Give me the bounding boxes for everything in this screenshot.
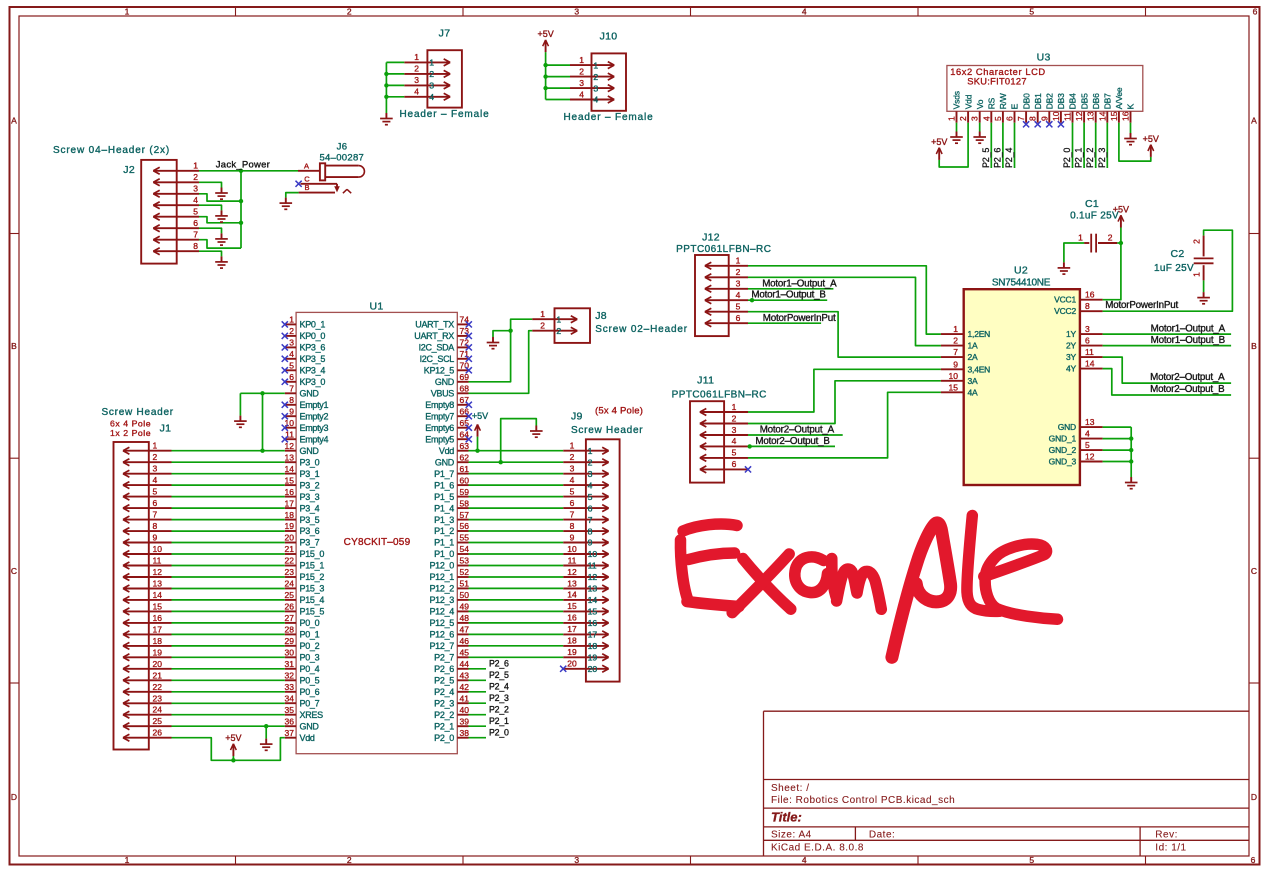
svg-text:C1: C1 xyxy=(1085,198,1099,210)
svg-text:P2_4: P2_4 xyxy=(434,687,454,697)
svg-text:PPTC061LFBN–RC: PPTC061LFBN–RC xyxy=(672,389,767,400)
svg-text:B: B xyxy=(304,183,309,192)
svg-text:SKU:FIT0127: SKU:FIT0127 xyxy=(967,76,1027,86)
svg-text:Title:: Title: xyxy=(771,810,802,825)
svg-text:49: 49 xyxy=(460,602,470,612)
svg-text:Motor2–Output_A: Motor2–Output_A xyxy=(1150,372,1225,383)
svg-text:Screw 04–Header (2x): Screw 04–Header (2x) xyxy=(53,145,170,156)
svg-text:63: 63 xyxy=(460,441,470,451)
svg-text:2: 2 xyxy=(347,855,352,865)
svg-text:GND: GND xyxy=(300,721,320,731)
svg-text:3: 3 xyxy=(574,7,579,17)
svg-text:P15_5: P15_5 xyxy=(300,607,325,617)
svg-text:A: A xyxy=(304,161,309,170)
svg-text:DB0: DB0 xyxy=(1021,93,1031,109)
svg-text:Header – Female: Header – Female xyxy=(563,112,653,123)
svg-text:15: 15 xyxy=(153,601,163,611)
svg-text:1: 1 xyxy=(289,315,294,325)
svg-text:UART_TX: UART_TX xyxy=(415,320,454,330)
svg-text:2: 2 xyxy=(1108,233,1113,243)
svg-text:DB3: DB3 xyxy=(1056,93,1066,109)
svg-text:3: 3 xyxy=(579,78,584,88)
svg-text:P12_2: P12_2 xyxy=(429,584,454,594)
svg-text:9: 9 xyxy=(570,532,575,542)
svg-text:P2_6: P2_6 xyxy=(434,664,454,674)
svg-text:C: C xyxy=(304,174,310,183)
svg-text:3: 3 xyxy=(574,855,579,865)
svg-text:2: 2 xyxy=(736,267,741,277)
svg-text:P0_6: P0_6 xyxy=(300,687,320,697)
svg-text:25: 25 xyxy=(153,716,163,726)
svg-text:1uF 25V: 1uF 25V xyxy=(1154,263,1194,274)
svg-text:GND: GND xyxy=(300,446,320,456)
svg-text:15: 15 xyxy=(285,475,295,485)
svg-text:P3_5: P3_5 xyxy=(300,515,320,525)
svg-text:5: 5 xyxy=(588,492,593,502)
svg-text:U2: U2 xyxy=(1014,265,1028,277)
svg-text:14: 14 xyxy=(153,590,163,600)
svg-text:6: 6 xyxy=(1251,855,1256,865)
svg-text:4: 4 xyxy=(593,95,598,105)
svg-text:3: 3 xyxy=(429,81,434,91)
svg-text:15: 15 xyxy=(949,382,959,392)
svg-text:P2_7: P2_7 xyxy=(434,653,454,663)
svg-text:5: 5 xyxy=(289,361,294,371)
svg-text:19: 19 xyxy=(567,647,577,657)
svg-text:7: 7 xyxy=(953,347,958,357)
svg-text:MotorPowerInPut: MotorPowerInPut xyxy=(763,313,836,324)
svg-text:Empty1: Empty1 xyxy=(300,400,329,410)
svg-text:+5V: +5V xyxy=(1143,134,1159,144)
svg-text:18: 18 xyxy=(567,636,577,646)
svg-text:7: 7 xyxy=(570,509,575,519)
svg-text:16: 16 xyxy=(567,613,577,623)
svg-text:3: 3 xyxy=(736,279,741,289)
svg-text:1: 1 xyxy=(593,60,598,70)
svg-text:17: 17 xyxy=(285,498,295,508)
svg-text:12: 12 xyxy=(1085,452,1095,462)
svg-text:P3_6: P3_6 xyxy=(300,526,320,536)
svg-text:P12_5: P12_5 xyxy=(429,618,454,628)
svg-text:KiCad E.D.A. 8.0.8: KiCad E.D.A. 8.0.8 xyxy=(771,843,864,854)
svg-text:4: 4 xyxy=(588,480,593,490)
svg-text:1x 2 Pole: 1x 2 Pole xyxy=(110,428,151,438)
svg-text:18: 18 xyxy=(285,510,295,520)
svg-text:J2: J2 xyxy=(123,164,135,176)
svg-text:9: 9 xyxy=(153,533,158,543)
svg-text:Motor1–Output_B: Motor1–Output_B xyxy=(751,290,826,301)
svg-text:3: 3 xyxy=(1085,324,1090,334)
svg-text:68: 68 xyxy=(460,384,470,394)
svg-text:P2_3: P2_3 xyxy=(489,693,509,703)
svg-text:P0_2: P0_2 xyxy=(300,641,320,651)
svg-text:P1_3: P1_3 xyxy=(434,515,454,525)
svg-text:62: 62 xyxy=(460,452,470,462)
svg-text:4: 4 xyxy=(732,436,737,446)
svg-text:J6: J6 xyxy=(337,141,348,152)
svg-text:1: 1 xyxy=(588,446,593,456)
svg-text:56: 56 xyxy=(460,521,470,531)
svg-text:4: 4 xyxy=(193,195,198,205)
svg-text:5: 5 xyxy=(736,302,741,312)
svg-text:(5x 4 Pole): (5x 4 Pole) xyxy=(595,405,643,416)
svg-text:69: 69 xyxy=(460,372,470,382)
svg-text:7: 7 xyxy=(1016,116,1026,121)
svg-text:3: 3 xyxy=(593,83,598,93)
svg-text:1: 1 xyxy=(125,7,130,17)
svg-text:2: 2 xyxy=(732,413,737,423)
svg-text:22: 22 xyxy=(153,682,163,692)
svg-text:U1: U1 xyxy=(369,301,383,313)
svg-text:5: 5 xyxy=(732,448,737,458)
svg-text:4: 4 xyxy=(289,349,294,359)
svg-text:48: 48 xyxy=(460,613,470,623)
svg-text:UART_RX: UART_RX xyxy=(414,331,454,341)
svg-text:4: 4 xyxy=(570,475,575,485)
svg-text:3: 3 xyxy=(732,425,737,435)
svg-text:16: 16 xyxy=(285,487,295,497)
svg-text:55: 55 xyxy=(460,533,470,543)
svg-text:1: 1 xyxy=(953,324,958,334)
svg-text:P15_1: P15_1 xyxy=(300,561,325,571)
svg-text:P2_3: P2_3 xyxy=(1097,148,1107,168)
svg-text:26: 26 xyxy=(153,728,163,738)
svg-text:P2_5: P2_5 xyxy=(981,148,991,168)
svg-text:10: 10 xyxy=(1051,111,1061,121)
svg-text:File: Robotics Control PCB.kic: File: Robotics Control PCB.kicad_sch xyxy=(771,795,955,806)
svg-text:31: 31 xyxy=(285,659,295,669)
svg-text:38: 38 xyxy=(460,728,470,738)
svg-text:10: 10 xyxy=(567,544,577,554)
svg-text:P3_2: P3_2 xyxy=(300,480,320,490)
svg-text:13: 13 xyxy=(588,584,598,594)
svg-text:19: 19 xyxy=(588,653,598,663)
svg-text:52: 52 xyxy=(460,567,470,577)
svg-text:4: 4 xyxy=(429,92,434,102)
svg-text:+5V: +5V xyxy=(225,733,241,743)
svg-text:5: 5 xyxy=(193,207,198,217)
svg-text:26: 26 xyxy=(285,602,295,612)
svg-text:54–00287: 54–00287 xyxy=(319,153,364,164)
svg-text:K: K xyxy=(1126,103,1136,109)
svg-text:Empty5: Empty5 xyxy=(425,434,454,444)
svg-text:2: 2 xyxy=(570,452,575,462)
svg-text:1: 1 xyxy=(736,256,741,266)
svg-text:Motor2–Output_A: Motor2–Output_A xyxy=(760,425,835,436)
svg-text:C2: C2 xyxy=(1170,248,1184,260)
svg-text:19: 19 xyxy=(153,647,163,657)
svg-text:13: 13 xyxy=(153,579,163,589)
svg-text:1: 1 xyxy=(556,314,561,324)
svg-text:28: 28 xyxy=(285,625,295,635)
svg-text:P15_2: P15_2 xyxy=(300,572,325,582)
svg-text:Vdd: Vdd xyxy=(300,733,315,743)
svg-text:10: 10 xyxy=(153,544,163,554)
svg-text:7: 7 xyxy=(588,515,593,525)
svg-text:16: 16 xyxy=(1085,290,1095,300)
svg-text:1: 1 xyxy=(570,441,575,451)
svg-text:61: 61 xyxy=(460,464,470,474)
svg-text:8: 8 xyxy=(153,521,158,531)
svg-text:50: 50 xyxy=(460,590,470,600)
svg-text:J1: J1 xyxy=(160,423,172,435)
svg-text:P2_1: P2_1 xyxy=(434,721,454,731)
svg-text:3Y: 3Y xyxy=(1066,352,1077,362)
svg-text:P12_3: P12_3 xyxy=(429,595,454,605)
svg-text:SN754410NE: SN754410NE xyxy=(992,277,1051,288)
svg-text:19: 19 xyxy=(285,521,295,531)
svg-text:B: B xyxy=(11,341,17,351)
svg-text:20: 20 xyxy=(153,659,163,669)
svg-text:1: 1 xyxy=(429,58,434,68)
svg-text:24: 24 xyxy=(153,705,163,715)
svg-text:12: 12 xyxy=(285,441,295,451)
svg-text:13: 13 xyxy=(285,452,295,462)
svg-text:2: 2 xyxy=(588,457,593,467)
svg-text:P12_1: P12_1 xyxy=(429,572,454,582)
svg-text:I2C_SCL: I2C_SCL xyxy=(420,354,455,364)
svg-text:22: 22 xyxy=(285,556,295,566)
svg-text:P1_0: P1_0 xyxy=(434,549,454,559)
svg-text:KP3_4: KP3_4 xyxy=(300,366,326,376)
svg-text:60: 60 xyxy=(460,475,470,485)
svg-text:Sheet: /: Sheet: / xyxy=(771,783,809,794)
svg-text:P15_0: P15_0 xyxy=(300,549,325,559)
svg-text:23: 23 xyxy=(153,693,163,703)
svg-text:53: 53 xyxy=(460,556,470,566)
svg-text:2: 2 xyxy=(958,116,968,121)
svg-text:2: 2 xyxy=(1192,239,1202,244)
svg-text:Jack_Power: Jack_Power xyxy=(216,160,270,171)
svg-text:P3_4: P3_4 xyxy=(300,503,320,513)
svg-text:5: 5 xyxy=(1085,440,1090,450)
svg-text:D: D xyxy=(1251,792,1257,802)
svg-text:21: 21 xyxy=(285,544,295,554)
svg-text:1: 1 xyxy=(1078,233,1083,243)
svg-text:44: 44 xyxy=(460,659,470,669)
svg-text:7: 7 xyxy=(289,384,294,394)
svg-text:6: 6 xyxy=(1085,336,1090,346)
svg-text:+5V: +5V xyxy=(537,29,553,39)
svg-text:J11: J11 xyxy=(697,375,714,387)
svg-text:33: 33 xyxy=(285,682,295,692)
svg-text:3: 3 xyxy=(289,338,294,348)
svg-text:6: 6 xyxy=(153,498,158,508)
svg-text:Motor2–Output_B: Motor2–Output_B xyxy=(1150,384,1225,395)
svg-text:P2_0: P2_0 xyxy=(434,733,454,743)
svg-text:5: 5 xyxy=(1029,855,1034,865)
svg-text:6: 6 xyxy=(1253,7,1258,17)
svg-text:1: 1 xyxy=(1192,272,1202,277)
svg-text:47: 47 xyxy=(460,625,470,635)
svg-text:DB7: DB7 xyxy=(1103,93,1113,109)
svg-text:6: 6 xyxy=(289,372,294,382)
svg-text:32: 32 xyxy=(285,671,295,681)
svg-text:J8: J8 xyxy=(595,310,607,322)
svg-text:P2_4: P2_4 xyxy=(489,682,509,692)
svg-text:20: 20 xyxy=(285,533,295,543)
svg-text:CY8CKIT–059: CY8CKIT–059 xyxy=(344,537,411,548)
svg-text:5: 5 xyxy=(1029,7,1034,17)
svg-text:P2_4: P2_4 xyxy=(1004,148,1014,168)
svg-text:R/W: R/W xyxy=(998,93,1008,109)
svg-text:45: 45 xyxy=(460,648,470,658)
svg-text:DB6: DB6 xyxy=(1091,93,1101,109)
svg-text:8: 8 xyxy=(570,521,575,531)
svg-text:P3_3: P3_3 xyxy=(300,492,320,502)
svg-text:Screw 02–Header: Screw 02–Header xyxy=(595,324,688,335)
svg-text:3,4EN: 3,4EN xyxy=(968,364,991,374)
svg-text:25: 25 xyxy=(285,590,295,600)
svg-text:KP12_5: KP12_5 xyxy=(424,366,455,376)
svg-text:43: 43 xyxy=(460,671,470,681)
svg-text:14: 14 xyxy=(567,590,577,600)
svg-text:1: 1 xyxy=(414,52,419,62)
svg-text:Motor1–Output_B: Motor1–Output_B xyxy=(1151,335,1226,346)
svg-text:2: 2 xyxy=(414,64,419,74)
svg-text:U3: U3 xyxy=(1037,52,1051,64)
svg-text:J10: J10 xyxy=(600,31,618,43)
svg-text:Date:: Date: xyxy=(869,829,895,840)
svg-text:16: 16 xyxy=(1121,111,1131,121)
svg-text:6: 6 xyxy=(570,498,575,508)
svg-text:1Y: 1Y xyxy=(1066,329,1077,339)
svg-text:Header – Female: Header – Female xyxy=(399,109,489,120)
svg-text:Empty2: Empty2 xyxy=(300,411,329,421)
svg-text:20: 20 xyxy=(588,664,598,674)
svg-text:2: 2 xyxy=(429,69,434,79)
svg-text:1: 1 xyxy=(153,441,158,451)
svg-text:PPTC061LFBN–RC: PPTC061LFBN–RC xyxy=(676,244,771,255)
svg-text:DB1: DB1 xyxy=(1033,93,1043,109)
svg-text:J7: J7 xyxy=(439,28,451,40)
svg-text:GND_1: GND_1 xyxy=(1049,434,1077,444)
svg-text:P0_3: P0_3 xyxy=(300,653,320,663)
svg-text:Empty6: Empty6 xyxy=(425,423,454,433)
svg-text:13: 13 xyxy=(1086,111,1096,121)
svg-text:11: 11 xyxy=(153,556,162,566)
svg-text:P2_1: P2_1 xyxy=(1074,148,1084,168)
svg-text:+5V: +5V xyxy=(472,411,488,421)
svg-text:P12_7: P12_7 xyxy=(429,641,454,651)
svg-text:2: 2 xyxy=(556,326,561,336)
svg-text:2: 2 xyxy=(289,326,294,336)
svg-text:P2_0: P2_0 xyxy=(489,728,509,738)
svg-text:4: 4 xyxy=(736,290,741,300)
svg-text:13: 13 xyxy=(1085,417,1095,427)
svg-text:P1_5: P1_5 xyxy=(434,492,454,502)
svg-text:GND: GND xyxy=(300,389,320,399)
svg-text:59: 59 xyxy=(460,487,470,497)
svg-text:4: 4 xyxy=(802,855,807,865)
svg-text:DB2: DB2 xyxy=(1045,93,1055,109)
svg-text:P1_1: P1_1 xyxy=(434,538,454,548)
svg-text:C: C xyxy=(1251,566,1257,576)
svg-text:8: 8 xyxy=(1085,301,1090,311)
svg-text:1: 1 xyxy=(732,402,737,412)
svg-text:37: 37 xyxy=(285,728,295,738)
svg-text:P2_5: P2_5 xyxy=(489,670,509,680)
svg-text:E: E xyxy=(1010,103,1020,109)
svg-text:30: 30 xyxy=(285,648,295,658)
svg-text:11: 11 xyxy=(568,555,577,565)
svg-text:7: 7 xyxy=(153,510,158,520)
svg-text:1: 1 xyxy=(540,309,545,319)
svg-text:15: 15 xyxy=(588,607,598,617)
svg-text:Motor1–Output_A: Motor1–Output_A xyxy=(762,278,837,289)
svg-text:8: 8 xyxy=(1028,116,1038,121)
svg-text:Empty4: Empty4 xyxy=(300,434,329,444)
svg-text:P12_6: P12_6 xyxy=(429,630,454,640)
svg-text:4A: 4A xyxy=(968,387,979,397)
svg-text:35: 35 xyxy=(285,705,295,715)
svg-text:5: 5 xyxy=(153,487,158,497)
svg-text:I2C_SDA: I2C_SDA xyxy=(419,343,455,353)
svg-text:P1_4: P1_4 xyxy=(434,503,454,513)
svg-text:P15_3: P15_3 xyxy=(300,584,325,594)
svg-text:P2_2: P2_2 xyxy=(1085,148,1095,168)
svg-text:1: 1 xyxy=(193,161,198,171)
svg-text:J12: J12 xyxy=(702,231,720,243)
svg-text:4: 4 xyxy=(1085,429,1090,439)
svg-text:9: 9 xyxy=(289,406,294,416)
svg-text:P2_2: P2_2 xyxy=(489,705,509,715)
svg-text:GND: GND xyxy=(435,377,455,387)
svg-text:P3_1: P3_1 xyxy=(300,469,320,479)
svg-text:GND_2: GND_2 xyxy=(1049,445,1077,455)
svg-text:Empty3: Empty3 xyxy=(300,423,329,433)
svg-text:54: 54 xyxy=(460,544,470,554)
svg-text:6: 6 xyxy=(732,459,737,469)
svg-text:DB5: DB5 xyxy=(1079,93,1089,109)
svg-text:2: 2 xyxy=(593,72,598,82)
svg-text:12: 12 xyxy=(567,567,577,577)
svg-text:P0_4: P0_4 xyxy=(300,664,320,674)
svg-text:P0_1: P0_1 xyxy=(300,630,320,640)
svg-text:KP3_6: KP3_6 xyxy=(300,343,326,353)
svg-text:Empty7: Empty7 xyxy=(425,411,454,421)
svg-text:29: 29 xyxy=(285,636,295,646)
svg-text:Vdd: Vdd xyxy=(439,446,454,456)
svg-text:2: 2 xyxy=(953,336,958,346)
svg-text:14: 14 xyxy=(588,595,598,605)
svg-text:2: 2 xyxy=(540,321,545,331)
svg-text:1,2EN: 1,2EN xyxy=(968,329,991,339)
svg-text:KP3_5: KP3_5 xyxy=(300,354,326,364)
svg-text:KP0_1: KP0_1 xyxy=(300,320,326,330)
svg-text:46: 46 xyxy=(460,636,470,646)
svg-text:4: 4 xyxy=(414,87,419,97)
svg-text:VBUS: VBUS xyxy=(431,389,455,399)
svg-text:P1_2: P1_2 xyxy=(434,526,454,536)
svg-text:9: 9 xyxy=(588,538,593,548)
svg-text:C: C xyxy=(11,566,17,576)
svg-text:51: 51 xyxy=(460,579,470,589)
svg-text:KP3_0: KP3_0 xyxy=(300,377,326,387)
svg-text:GND: GND xyxy=(435,457,455,467)
svg-text:A: A xyxy=(1251,116,1257,126)
svg-text:14: 14 xyxy=(1085,359,1095,369)
svg-text:RS: RS xyxy=(987,97,997,109)
svg-text:12: 12 xyxy=(588,572,598,582)
svg-text:Screw Header: Screw Header xyxy=(571,425,643,436)
svg-text:P2_0: P2_0 xyxy=(1062,148,1072,168)
svg-text:P0_7: P0_7 xyxy=(300,698,320,708)
svg-text:A: A xyxy=(11,116,17,126)
svg-text:P2_1: P2_1 xyxy=(489,716,509,726)
svg-text:39: 39 xyxy=(460,716,470,726)
svg-text:14: 14 xyxy=(285,464,295,474)
